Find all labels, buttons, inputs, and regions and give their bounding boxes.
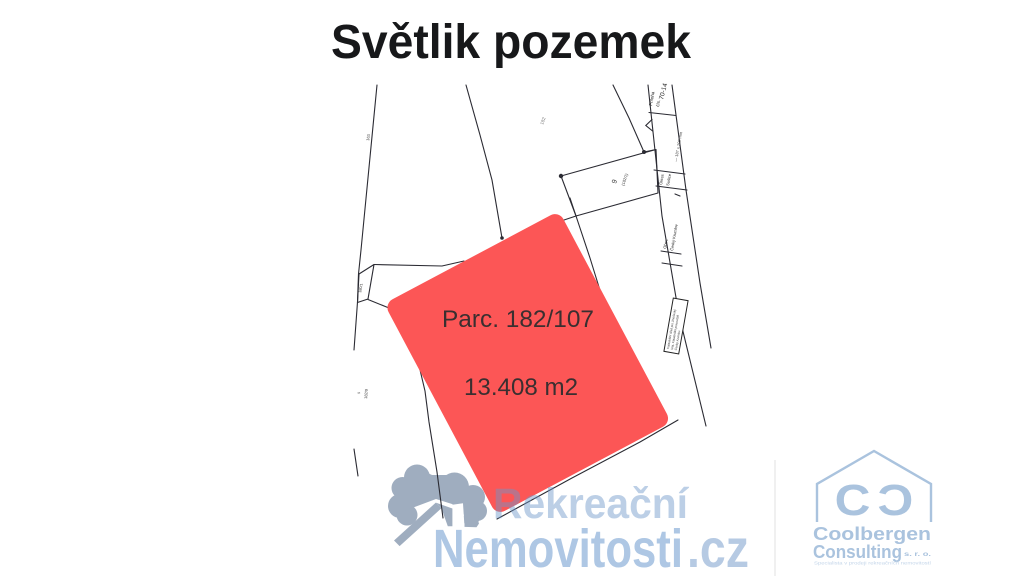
svg-text:180/1: 180/1	[358, 283, 364, 293]
svg-text:163: 163	[365, 133, 371, 141]
svg-text:C: C	[835, 476, 871, 524]
svg-text:Okres: Okres	[658, 174, 665, 185]
svg-text:Consulting: Consulting	[813, 542, 902, 562]
svg-text:s. r. o.: s. r. o.	[904, 552, 932, 558]
svg-text:Nemovitosti: Nemovitosti	[433, 519, 683, 576]
svg-text:(182/1): (182/1)	[620, 172, 629, 186]
svg-text:9: 9	[357, 392, 361, 394]
svg-text:13.408 m2: 13.408 m2	[464, 374, 578, 401]
svg-text:Specialista v prodeji rekreačn: Specialista v prodeji rekreačních nemovi…	[814, 561, 932, 566]
svg-text:70-14: 70-14	[658, 82, 669, 100]
svg-text:Coolbergen: Coolbergen	[813, 524, 931, 544]
svg-text:182/9: 182/9	[363, 388, 369, 399]
svg-text:Parc. 182/107: Parc. 182/107	[442, 306, 594, 333]
svg-text:čís.: čís.	[655, 99, 661, 107]
svg-text:C: C	[877, 476, 913, 524]
svg-text:9: 9	[611, 179, 619, 185]
svg-text:182: 182	[539, 116, 546, 125]
svg-text:.cz: .cz	[687, 519, 749, 576]
svg-text:Světlik pozemek: Světlik pozemek	[331, 15, 692, 69]
svg-text:Český Krumlov: Český Krumlov	[669, 224, 679, 251]
svg-text:Sušice: Sušice	[665, 173, 672, 186]
